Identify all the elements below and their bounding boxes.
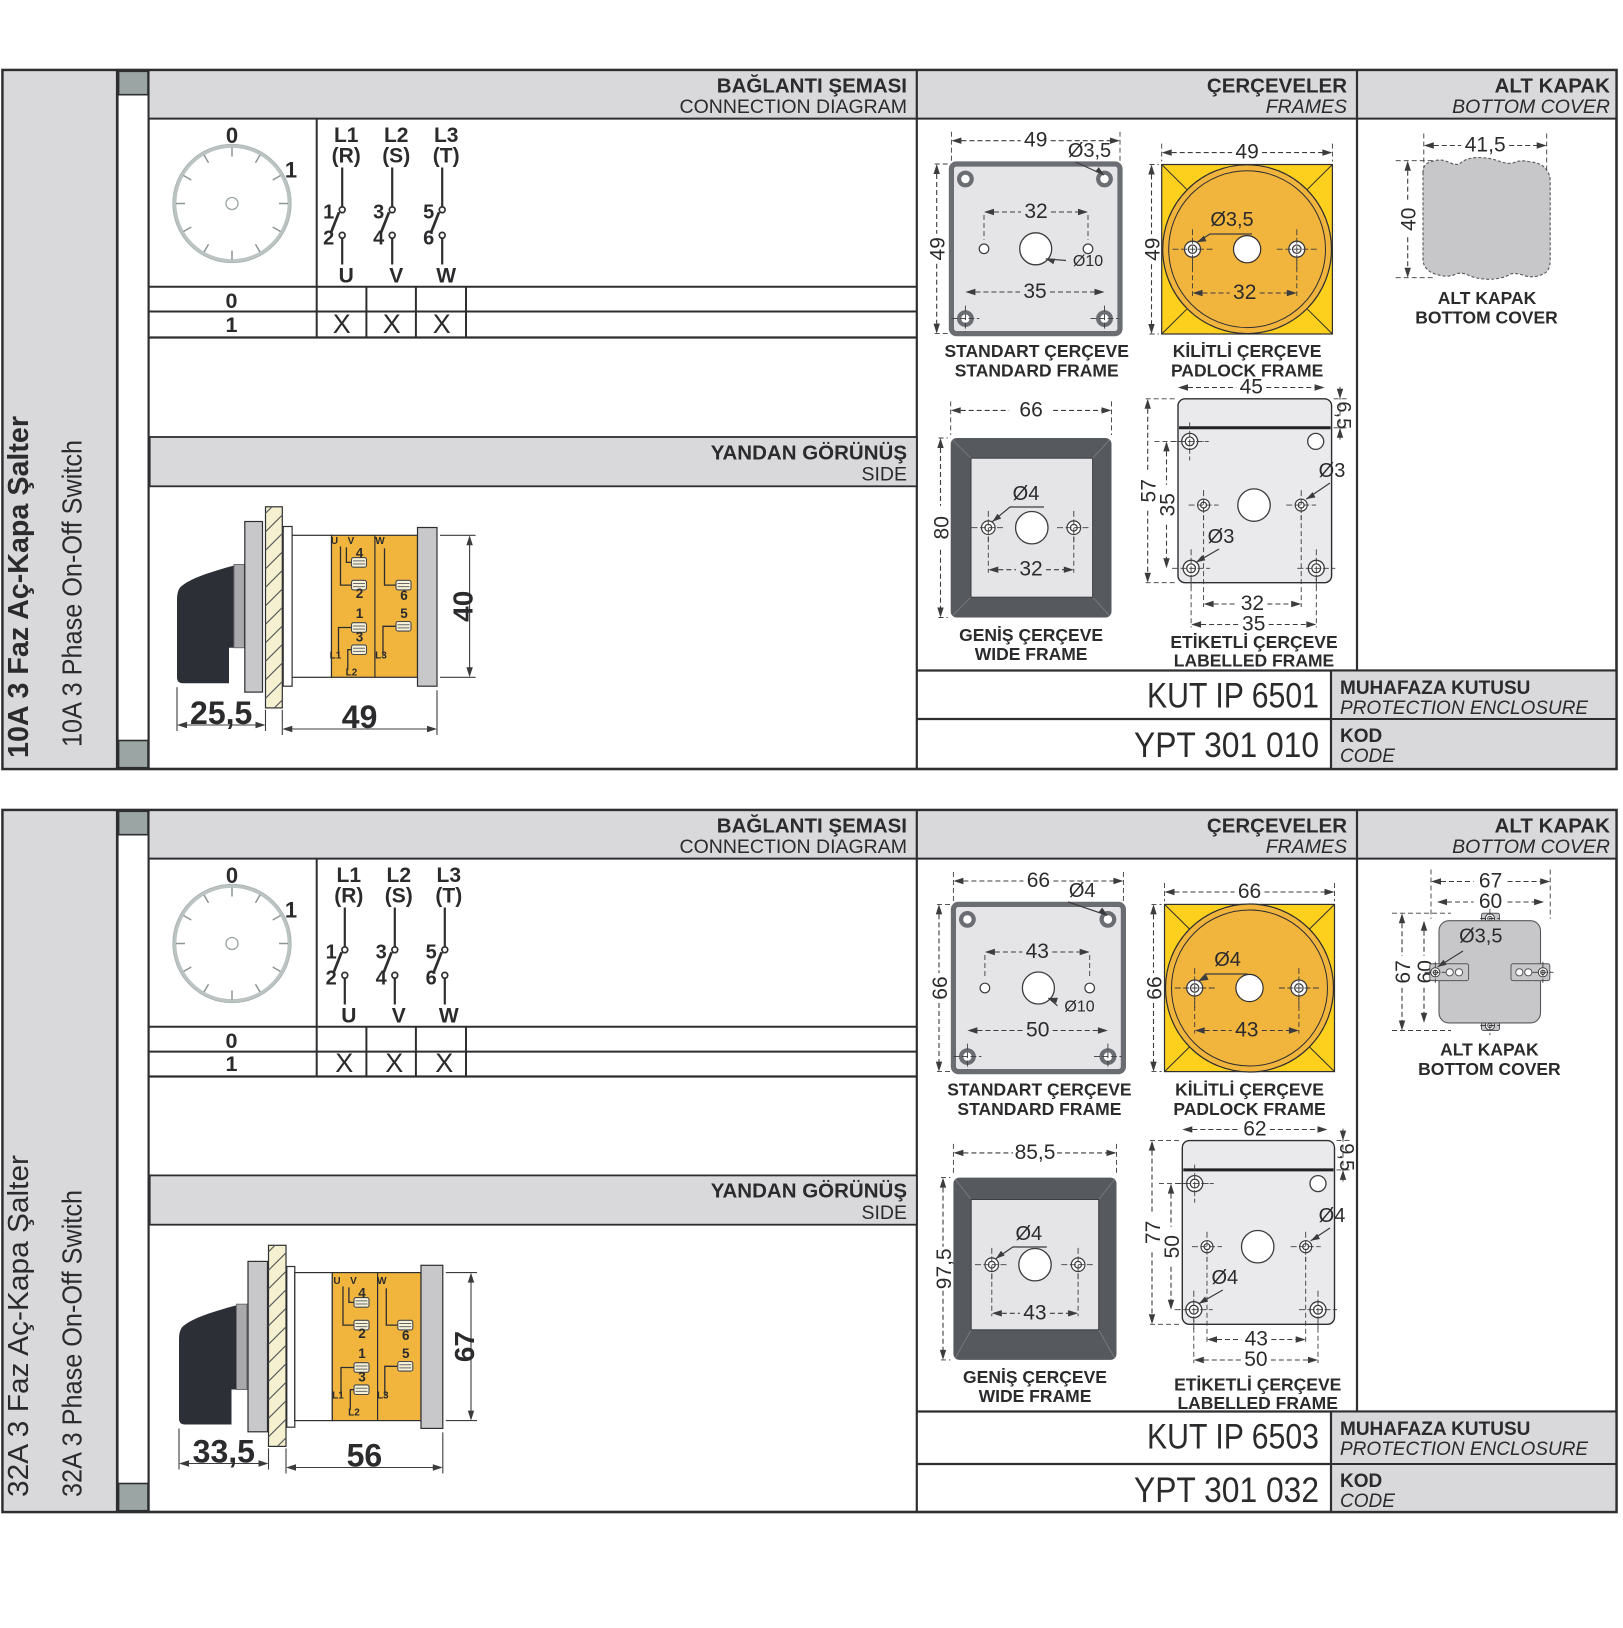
- svg-text:33,5: 33,5: [193, 1434, 255, 1470]
- svg-text:U: U: [333, 1276, 340, 1287]
- svg-text:WIDE FRAME: WIDE FRAME: [979, 1386, 1092, 1406]
- svg-text:49: 49: [1235, 141, 1258, 164]
- svg-text:LABELLED FRAME: LABELLED FRAME: [1174, 651, 1334, 671]
- svg-text:YPT 301 010: YPT 301 010: [1134, 725, 1319, 765]
- svg-text:BOTTOM COVER: BOTTOM COVER: [1452, 96, 1610, 118]
- svg-text:Ø3: Ø3: [1208, 526, 1235, 548]
- svg-text:X: X: [385, 1048, 403, 1078]
- svg-text:Ø3,5: Ø3,5: [1459, 926, 1502, 948]
- svg-text:L2: L2: [348, 1408, 360, 1419]
- svg-text:ALT KAPAK: ALT KAPAK: [1440, 1040, 1539, 1060]
- svg-text:0: 0: [226, 1029, 238, 1053]
- svg-text:U: U: [341, 1005, 356, 1028]
- svg-text:0: 0: [226, 289, 238, 313]
- svg-text:STANDARD FRAME: STANDARD FRAME: [957, 1099, 1121, 1119]
- svg-text:40: 40: [1398, 208, 1421, 231]
- svg-text:GENİŞ ÇERÇEVE: GENİŞ ÇERÇEVE: [959, 625, 1103, 645]
- svg-text:2: 2: [326, 968, 337, 990]
- svg-text:(R): (R): [332, 145, 361, 168]
- svg-text:Ø3,5: Ø3,5: [1210, 209, 1253, 231]
- svg-text:3: 3: [358, 1370, 366, 1385]
- svg-text:STANDART ÇERÇEVE: STANDART ÇERÇEVE: [947, 1080, 1131, 1100]
- svg-text:6: 6: [402, 1328, 410, 1343]
- svg-text:(R): (R): [334, 885, 363, 908]
- svg-text:L2: L2: [346, 668, 358, 679]
- svg-text:1: 1: [285, 158, 297, 183]
- svg-text:YANDAN GÖRÜNÜŞ: YANDAN GÖRÜNÜŞ: [711, 1180, 907, 1203]
- svg-text:3: 3: [376, 942, 387, 964]
- svg-text:W: W: [375, 536, 385, 547]
- svg-text:5: 5: [400, 606, 408, 621]
- svg-text:CODE: CODE: [1340, 746, 1395, 767]
- svg-text:Ø3: Ø3: [1319, 460, 1346, 482]
- svg-text:L3: L3: [375, 651, 387, 662]
- svg-text:4: 4: [356, 545, 364, 560]
- svg-text:GENİŞ ÇERÇEVE: GENİŞ ÇERÇEVE: [963, 1367, 1107, 1387]
- svg-text:L3: L3: [377, 1391, 389, 1402]
- svg-text:MUHAFAZA KUTUSU: MUHAFAZA KUTUSU: [1340, 1419, 1530, 1440]
- svg-text:Ø4: Ø4: [1211, 1267, 1238, 1289]
- svg-text:CODE: CODE: [1340, 1491, 1395, 1512]
- svg-text:9,5: 9,5: [1335, 1143, 1357, 1171]
- svg-text:5: 5: [402, 1346, 410, 1361]
- svg-text:(T): (T): [433, 145, 460, 168]
- svg-text:KİLİTLİ ÇERÇEVE: KİLİTLİ ÇERÇEVE: [1173, 341, 1322, 361]
- svg-text:LABELLED FRAME: LABELLED FRAME: [1177, 1393, 1337, 1413]
- svg-text:5: 5: [423, 202, 434, 224]
- svg-text:49: 49: [342, 699, 378, 735]
- svg-text:2: 2: [323, 228, 334, 250]
- svg-text:FRAMES: FRAMES: [1266, 836, 1347, 858]
- svg-text:1: 1: [358, 1346, 366, 1361]
- svg-text:32: 32: [1019, 558, 1042, 581]
- svg-text:66: 66: [1019, 398, 1042, 421]
- svg-text:66: 66: [1238, 880, 1261, 903]
- svg-text:Ø10: Ø10: [1073, 253, 1103, 270]
- svg-text:V: V: [350, 1276, 357, 1287]
- svg-text:Ø4: Ø4: [1214, 949, 1241, 971]
- svg-text:3: 3: [373, 202, 384, 224]
- svg-text:ALT KAPAK: ALT KAPAK: [1495, 815, 1611, 838]
- svg-text:97,5: 97,5: [933, 1248, 956, 1289]
- svg-text:X: X: [383, 309, 401, 339]
- svg-text:1: 1: [326, 942, 337, 964]
- svg-text:4: 4: [358, 1285, 366, 1300]
- svg-text:CONNECTION DIAGRAM: CONNECTION DIAGRAM: [679, 96, 907, 118]
- svg-text:49: 49: [1142, 238, 1165, 261]
- svg-text:40: 40: [448, 591, 479, 622]
- svg-text:Ø3,5: Ø3,5: [1068, 140, 1111, 162]
- svg-text:BAĞLANTI ŞEMASI: BAĞLANTI ŞEMASI: [717, 814, 907, 838]
- svg-text:2: 2: [356, 586, 364, 601]
- svg-text:ÇERÇEVELER: ÇERÇEVELER: [1207, 815, 1347, 838]
- svg-text:BOTTOM COVER: BOTTOM COVER: [1415, 308, 1558, 328]
- svg-text:35: 35: [1023, 280, 1046, 303]
- svg-text:50: 50: [1244, 1348, 1267, 1371]
- svg-text:6: 6: [400, 588, 408, 603]
- svg-text:X: X: [435, 1048, 453, 1078]
- svg-text:Ø10: Ø10: [1064, 998, 1094, 1015]
- svg-text:4: 4: [376, 968, 388, 990]
- svg-text:KUT IP 6501: KUT IP 6501: [1147, 676, 1319, 716]
- svg-text:43: 43: [1023, 1301, 1046, 1324]
- svg-text:W: W: [377, 1276, 387, 1287]
- svg-text:49: 49: [927, 237, 950, 260]
- svg-text:PROTECTION ENCLOSURE: PROTECTION ENCLOSURE: [1340, 1439, 1588, 1460]
- svg-text:56: 56: [347, 1438, 383, 1474]
- svg-text:Ø4: Ø4: [1319, 1205, 1346, 1227]
- svg-text:35: 35: [1157, 493, 1180, 516]
- svg-text:L1: L1: [332, 1391, 344, 1402]
- svg-text:6,5: 6,5: [1332, 401, 1354, 429]
- svg-text:YPT 301 032: YPT 301 032: [1134, 1470, 1319, 1510]
- svg-text:4: 4: [373, 228, 385, 250]
- svg-text:X: X: [335, 1048, 353, 1078]
- svg-text:62: 62: [1243, 1118, 1266, 1141]
- svg-text:0: 0: [226, 123, 238, 148]
- svg-text:45: 45: [1240, 376, 1263, 399]
- svg-text:66: 66: [929, 976, 952, 999]
- svg-text:L1: L1: [330, 651, 342, 662]
- svg-text:SIDE: SIDE: [861, 1202, 907, 1224]
- svg-text:6: 6: [423, 228, 434, 250]
- svg-text:STANDART ÇERÇEVE: STANDART ÇERÇEVE: [944, 341, 1128, 361]
- svg-text:66: 66: [1144, 976, 1167, 999]
- svg-text:ETİKETLİ ÇERÇEVE: ETİKETLİ ÇERÇEVE: [1174, 1375, 1341, 1395]
- svg-text:(T): (T): [435, 885, 462, 908]
- svg-text:67: 67: [449, 1331, 480, 1362]
- svg-text:V: V: [392, 1005, 406, 1028]
- svg-text:V: V: [389, 265, 403, 288]
- svg-text:25,5: 25,5: [190, 695, 252, 731]
- svg-text:KOD: KOD: [1340, 726, 1382, 747]
- svg-text:Ø4: Ø4: [1069, 880, 1096, 902]
- svg-text:X: X: [333, 309, 351, 339]
- svg-text:0: 0: [226, 863, 238, 888]
- svg-text:49: 49: [1024, 129, 1047, 152]
- svg-text:WIDE FRAME: WIDE FRAME: [975, 644, 1088, 664]
- svg-text:1: 1: [226, 313, 238, 337]
- svg-text:3: 3: [356, 630, 364, 645]
- svg-text:CONNECTION DIAGRAM: CONNECTION DIAGRAM: [679, 836, 907, 858]
- svg-text:KOD: KOD: [1340, 1471, 1382, 1492]
- svg-text:1: 1: [323, 202, 334, 224]
- svg-text:5: 5: [426, 942, 437, 964]
- svg-text:W: W: [439, 1005, 459, 1028]
- svg-text:W: W: [436, 265, 456, 288]
- svg-text:MUHAFAZA KUTUSU: MUHAFAZA KUTUSU: [1340, 678, 1530, 699]
- svg-text:66: 66: [1027, 869, 1050, 892]
- svg-text:BAĞLANTI ŞEMASI: BAĞLANTI ŞEMASI: [717, 74, 907, 98]
- svg-text:YANDAN GÖRÜNÜŞ: YANDAN GÖRÜNÜŞ: [711, 441, 907, 464]
- svg-text:32A 3 Phase On-Off Switch: 32A 3 Phase On-Off Switch: [57, 1190, 88, 1497]
- svg-text:10A 3 Phase On-Off Switch: 10A 3 Phase On-Off Switch: [57, 440, 88, 747]
- svg-text:80: 80: [931, 516, 954, 539]
- svg-text:2: 2: [358, 1326, 366, 1341]
- svg-text:SIDE: SIDE: [861, 464, 907, 486]
- svg-text:STANDARD FRAME: STANDARD FRAME: [955, 361, 1119, 381]
- svg-text:U: U: [331, 536, 338, 547]
- svg-text:32: 32: [1024, 200, 1047, 223]
- svg-text:ALT KAPAK: ALT KAPAK: [1495, 75, 1611, 98]
- svg-text:60: 60: [1479, 890, 1502, 913]
- svg-text:50: 50: [1161, 1235, 1184, 1258]
- svg-text:1: 1: [226, 1052, 238, 1076]
- svg-text:KUT IP 6503: KUT IP 6503: [1147, 1417, 1319, 1457]
- svg-text:X: X: [433, 309, 451, 339]
- svg-text:BOTTOM COVER: BOTTOM COVER: [1452, 836, 1610, 858]
- svg-text:1: 1: [285, 898, 297, 923]
- svg-text:32: 32: [1233, 281, 1256, 304]
- svg-text:50: 50: [1026, 1019, 1049, 1042]
- svg-text:ETİKETLİ ÇERÇEVE: ETİKETLİ ÇERÇEVE: [1170, 632, 1337, 652]
- svg-text:6: 6: [426, 968, 437, 990]
- svg-text:KİLİTLİ ÇERÇEVE: KİLİTLİ ÇERÇEVE: [1175, 1080, 1324, 1100]
- svg-text:(S): (S): [385, 885, 413, 908]
- svg-text:67: 67: [1392, 960, 1415, 983]
- svg-text:Ø4: Ø4: [1015, 1223, 1042, 1245]
- svg-text:ÇERÇEVELER: ÇERÇEVELER: [1207, 75, 1347, 98]
- svg-text:85,5: 85,5: [1015, 1141, 1056, 1164]
- svg-text:43: 43: [1235, 1019, 1258, 1042]
- svg-text:PADLOCK FRAME: PADLOCK FRAME: [1173, 1099, 1325, 1119]
- svg-text:U: U: [339, 265, 354, 288]
- svg-text:32A 3 Faz Aç-Kapa Şalter: 32A 3 Faz Aç-Kapa Şalter: [3, 1154, 35, 1497]
- svg-text:(S): (S): [382, 145, 410, 168]
- svg-text:41,5: 41,5: [1465, 134, 1506, 157]
- svg-text:Ø4: Ø4: [1013, 483, 1040, 505]
- svg-text:BOTTOM COVER: BOTTOM COVER: [1418, 1059, 1561, 1079]
- svg-text:V: V: [348, 536, 355, 547]
- svg-text:FRAMES: FRAMES: [1266, 96, 1347, 118]
- svg-text:PROTECTION ENCLOSURE: PROTECTION ENCLOSURE: [1340, 698, 1588, 719]
- svg-text:43: 43: [1026, 940, 1049, 963]
- svg-text:ALT KAPAK: ALT KAPAK: [1438, 288, 1537, 308]
- svg-text:10A 3 Faz Aç-Kapa Şalter: 10A 3 Faz Aç-Kapa Şalter: [3, 416, 35, 758]
- svg-text:1: 1: [356, 606, 364, 621]
